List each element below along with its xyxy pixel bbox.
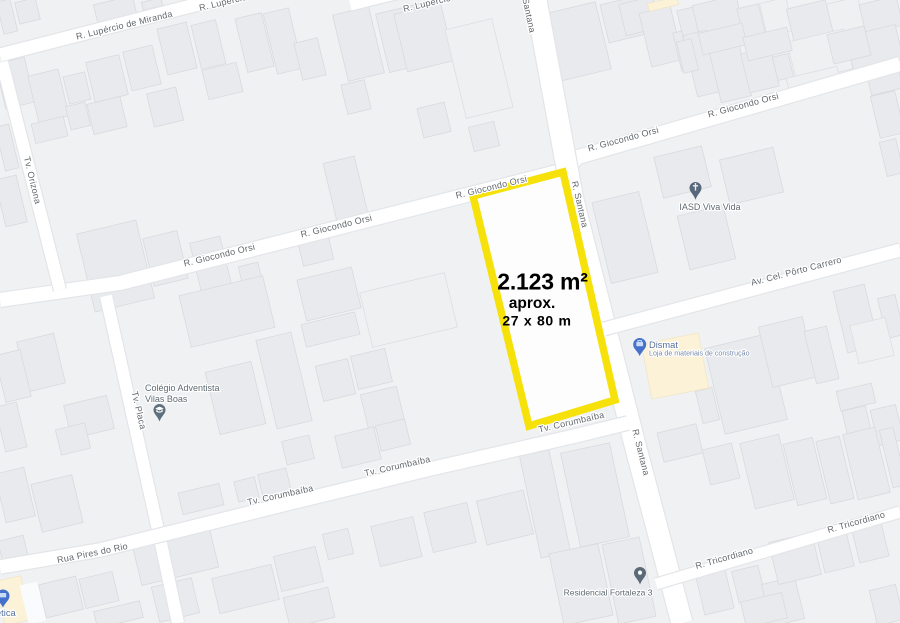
- svg-text:Dismat: Dismat: [649, 340, 678, 350]
- svg-text:Vilas Boas: Vilas Boas: [145, 394, 188, 404]
- svg-text:ética: ética: [0, 608, 16, 618]
- svg-text:aprox.: aprox.: [509, 295, 556, 312]
- svg-text:Residencial Fortaleza 3: Residencial Fortaleza 3: [564, 588, 653, 598]
- svg-text:IASD Viva Vida: IASD Viva Vida: [679, 202, 740, 212]
- svg-text:Loja de materiais de construçã: Loja de materiais de construção: [649, 350, 750, 358]
- svg-text:2.123 m²: 2.123 m²: [497, 269, 588, 295]
- svg-text:27 x 80 m: 27 x 80 m: [502, 313, 571, 329]
- svg-text:Colégio Adventista: Colégio Adventista: [145, 383, 220, 393]
